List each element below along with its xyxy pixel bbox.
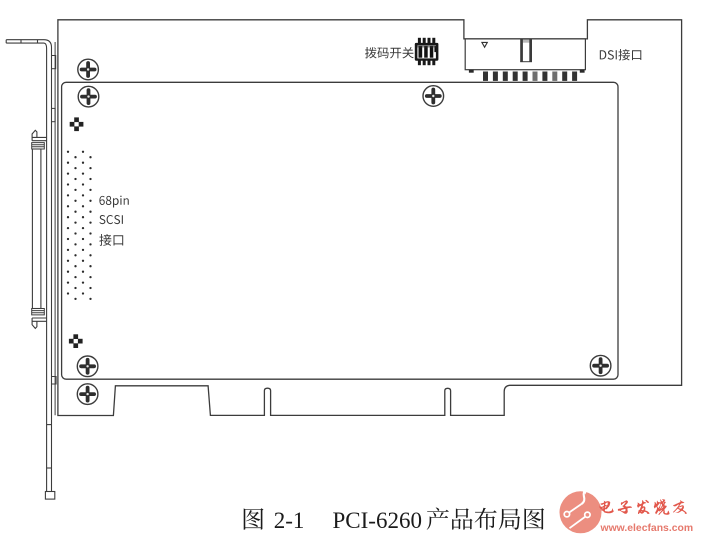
svg-text:www.elecfans.com: www.elecfans.com — [600, 523, 694, 534]
svg-text:PCI-6260: PCI-6260 — [333, 508, 422, 533]
svg-text:2-1: 2-1 — [274, 508, 305, 533]
